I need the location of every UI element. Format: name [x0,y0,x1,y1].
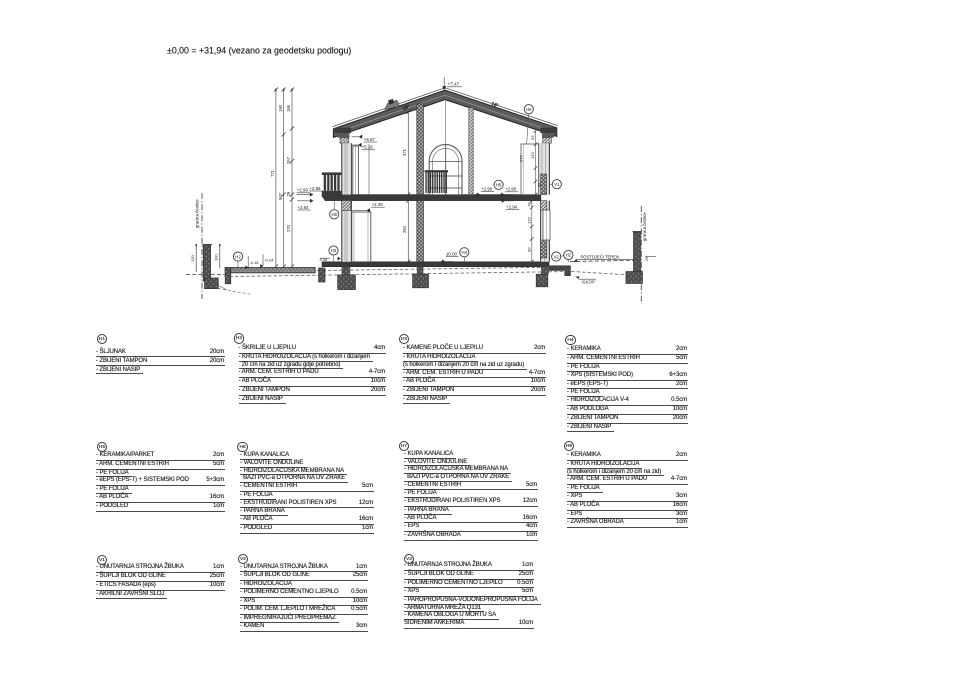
svg-text:H3: H3 [331,248,337,253]
svg-text:587: 587 [278,192,283,200]
svg-text:25: 25 [644,256,649,261]
svg-text:90: 90 [537,182,542,187]
svg-text:+2.94: +2.94 [506,204,518,209]
svg-text:+7.47: +7.47 [448,82,460,87]
svg-text:H5: H5 [496,183,502,188]
svg-text:H6: H6 [526,107,532,112]
svg-text:+2.64: +2.64 [297,205,309,210]
svg-text:H4: H4 [462,250,468,255]
svg-text:V2: V2 [554,254,560,259]
svg-text:267: 267 [286,156,291,164]
svg-text:90: 90 [526,247,531,252]
svg-text:+2.25: +2.25 [372,202,384,207]
svg-text:+2.90: +2.90 [481,186,493,191]
svg-text:+2.90: +2.90 [297,188,309,193]
svg-text:133: 133 [526,217,531,224]
svg-text:H2: H2 [235,254,241,259]
svg-text:H2: H2 [566,253,572,258]
svg-text:-0.08: -0.08 [319,258,327,262]
svg-text:+5.97: +5.97 [364,137,376,142]
svg-text:-0.16: -0.16 [249,260,259,265]
svg-text:±0,00 = +31,94 (vezano za geod: ±0,00 = +31,94 (vezano za geodetsku podl… [167,46,351,56]
svg-text:+2.90: +2.90 [505,187,517,192]
svg-text:133: 133 [530,152,535,159]
svg-text:276: 276 [518,155,523,162]
svg-text:29: 29 [286,191,291,196]
svg-text:771: 771 [270,169,275,177]
svg-text:+2.96: +2.96 [309,186,321,191]
svg-text:270: 270 [286,224,291,232]
svg-text:130: 130 [190,255,195,262]
svg-text:186: 186 [286,104,291,112]
svg-text:190: 190 [278,104,283,112]
svg-text:41: 41 [526,201,531,206]
svg-text:371: 371 [402,148,407,156]
svg-text:H8: H8 [331,212,337,217]
svg-text:granica čestice: granica čestice [642,212,647,241]
svg-text:±0.00: ±0.00 [446,251,458,256]
svg-text:93: 93 [530,135,535,140]
svg-text:100: 100 [213,254,218,261]
svg-text:V1: V1 [554,182,560,187]
svg-text:granica čestice: granica čestice [195,199,200,228]
svg-text:ISKOP: ISKOP [582,280,595,285]
svg-text:284: 284 [402,225,407,233]
svg-text:+5.18: +5.18 [362,145,374,150]
svg-text:-0.24: -0.24 [264,257,274,262]
svg-text:POSTOJEĆI TEREN: POSTOJEĆI TEREN [581,254,620,259]
